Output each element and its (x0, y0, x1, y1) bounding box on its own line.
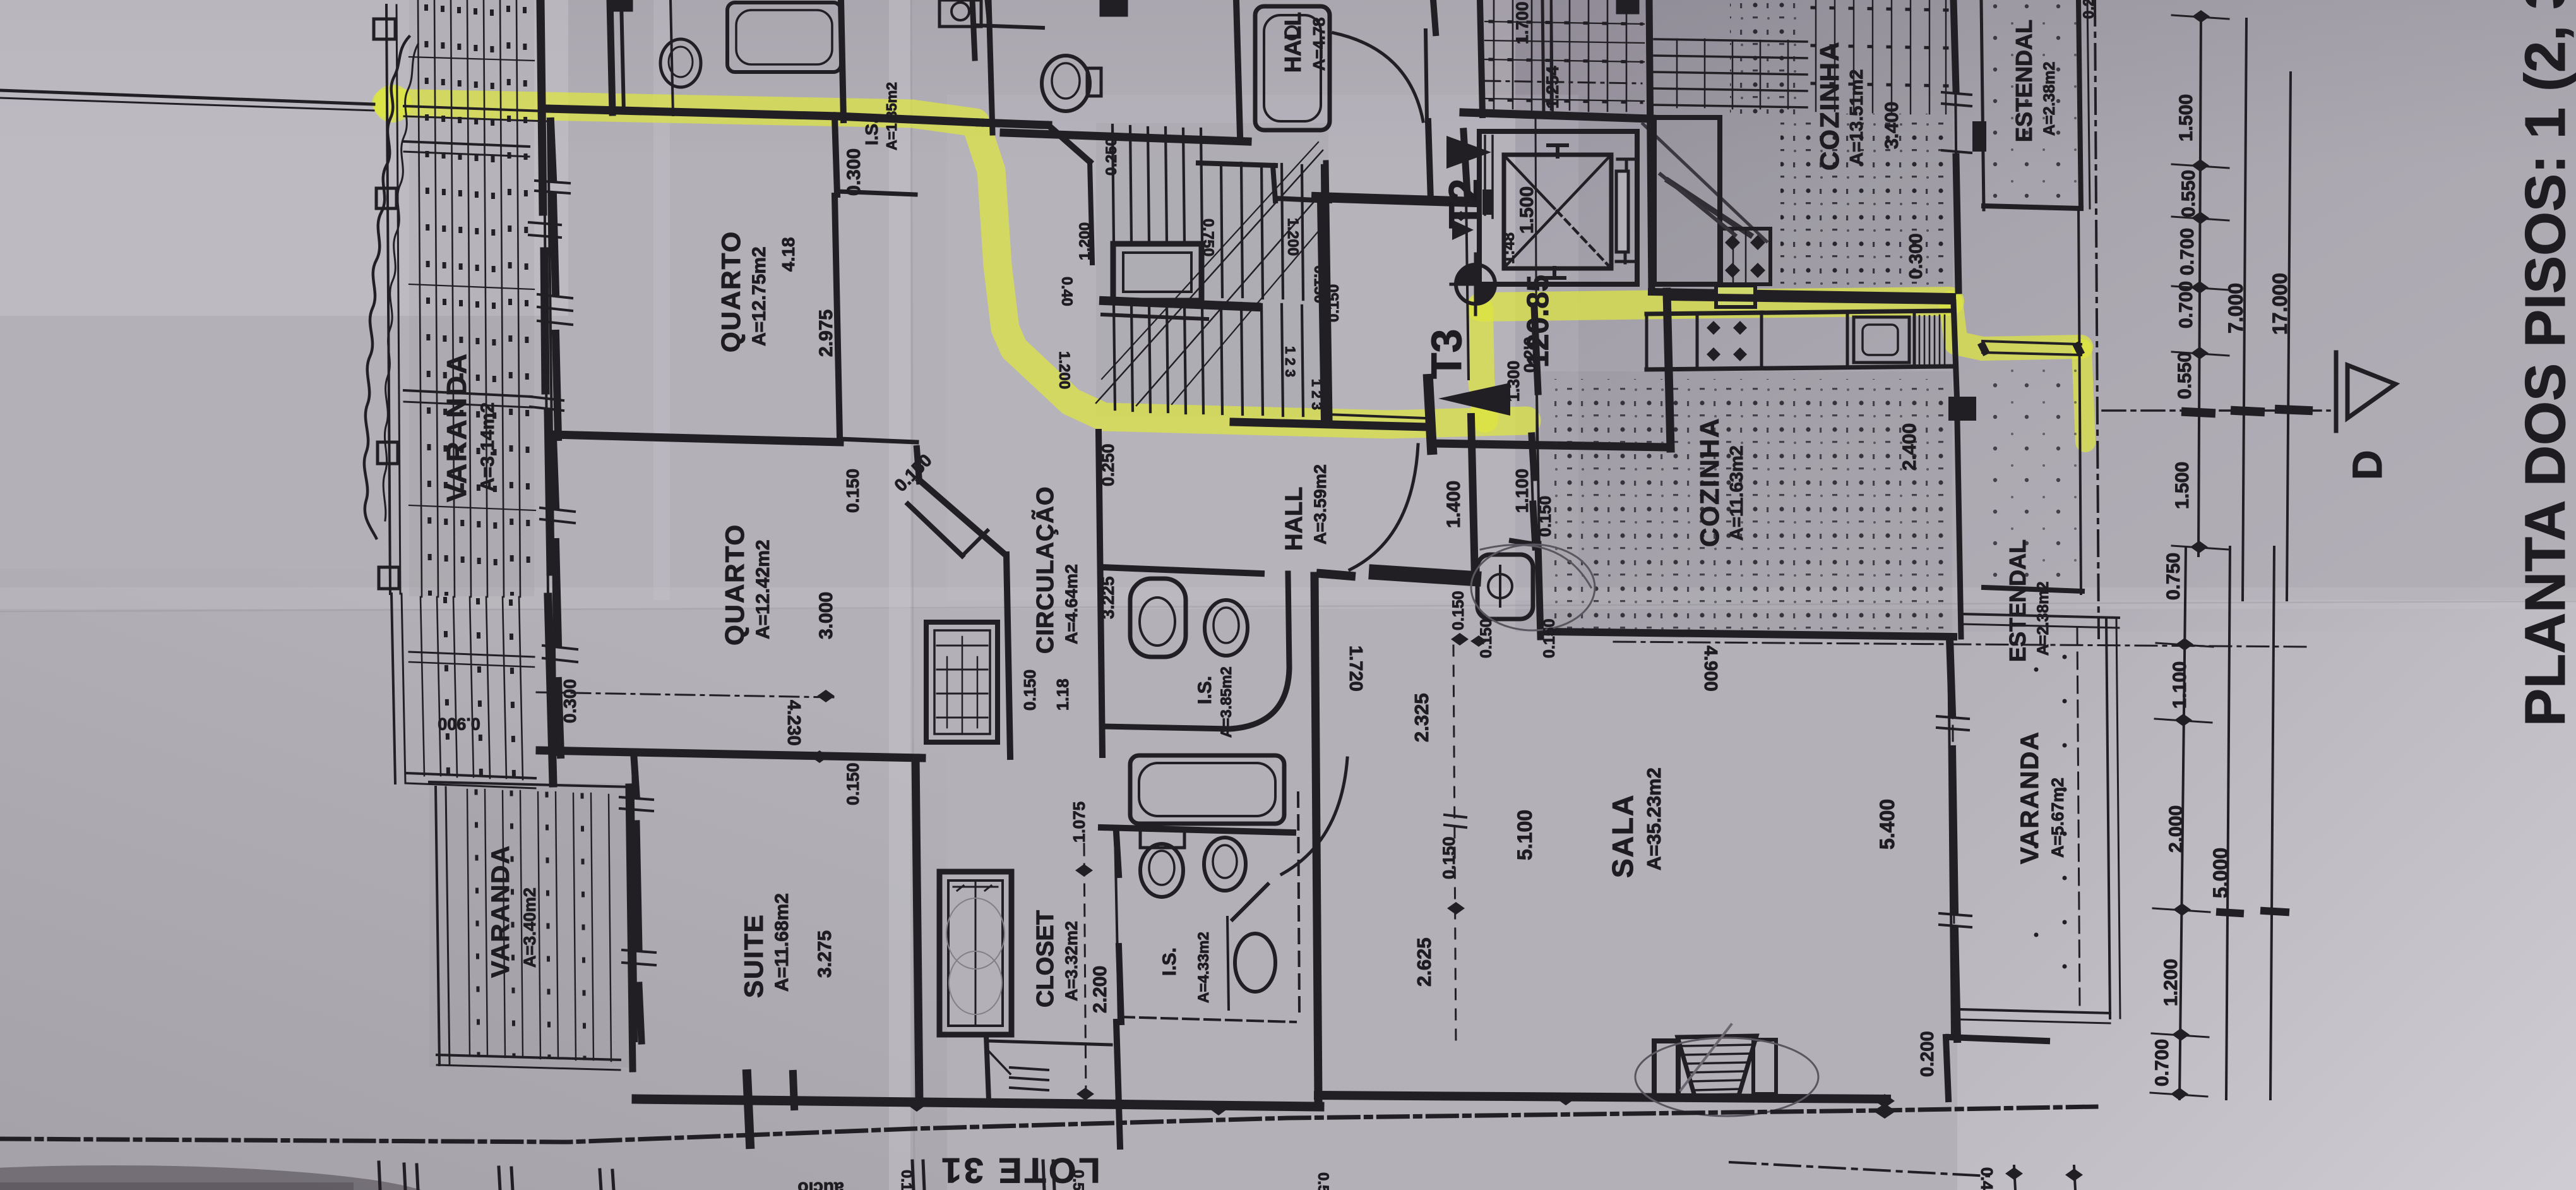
svg-text:A=4.78: A=4.78 (1309, 17, 1328, 71)
svg-text:A=3.32m2: A=3.32m2 (1062, 921, 1081, 1001)
svg-text:2.625: 2.625 (1413, 937, 1435, 987)
svg-text:I.S.: I.S. (1159, 947, 1180, 976)
svg-text:0.2'0: 0.2'0 (1520, 337, 1539, 373)
svg-text:0.150: 0.150 (1477, 618, 1495, 658)
svg-text:0.50: 0.50 (1070, 1170, 1087, 1190)
svg-text:A=5.67m2: A=5.67m2 (2048, 778, 2067, 858)
svg-text:aucio: aucio (797, 1179, 844, 1190)
svg-text:0.300: 0.300 (1906, 233, 1926, 279)
svg-text:1.200: 1.200 (1284, 218, 1301, 256)
svg-text:1.200: 1.200 (1056, 351, 1073, 389)
svg-text:A=3.40m2: A=3.40m2 (520, 887, 539, 968)
svg-text:VARANDA: VARANDA (487, 844, 515, 978)
svg-text:A=13.51m2: A=13.51m2 (1847, 69, 1867, 165)
svg-text:I.S.: I.S. (1195, 676, 1215, 704)
svg-text:A=12.42m2: A=12.42m2 (753, 539, 773, 639)
svg-text:4.230: 4.230 (784, 700, 804, 746)
svg-text:A=2.38m2: A=2.38m2 (2034, 582, 2052, 656)
svg-text:0.550: 0.550 (2174, 352, 2195, 399)
svg-text:D: D (2344, 450, 2390, 480)
svg-text:2.325: 2.325 (1410, 693, 1433, 742)
svg-text:5.400: 5.400 (1876, 799, 1899, 850)
svg-text:1.500: 1.500 (2172, 462, 2193, 509)
svg-text:ESTENDAL: ESTENDAL (2011, 20, 2037, 142)
svg-text:3.275: 3.275 (814, 930, 835, 978)
svg-text:4.900: 4.900 (1700, 646, 1720, 692)
svg-text:0.750: 0.750 (2163, 553, 2184, 600)
svg-text:CLOSET: CLOSET (1032, 910, 1059, 1007)
svg-text:A=2.38m2: A=2.38m2 (2041, 62, 2058, 136)
svg-text:2.000: 2.000 (2166, 805, 2186, 853)
svg-text:3.400: 3.400 (1881, 102, 1902, 149)
svg-text:3.000: 3.000 (816, 592, 837, 639)
svg-text:0.150: 0.150 (1541, 618, 1558, 658)
svg-text:I.S.: I.S. (862, 119, 881, 145)
svg-text:1 2 3: 1 2 3 (1282, 346, 1298, 377)
svg-text:0.150: 0.150 (1020, 670, 1039, 711)
svg-text:0.300: 0.300 (560, 679, 580, 723)
svg-text:0.700: 0.700 (2176, 281, 2197, 328)
svg-text:0.150: 0.150 (1450, 591, 1467, 630)
svg-text:A=1.85m2: A=1.85m2 (883, 82, 900, 150)
svg-text:0.150: 0.150 (843, 469, 862, 513)
svg-text:ESTENDAL: ESTENDAL (2005, 539, 2030, 662)
svg-text:1.254: 1.254 (1543, 66, 1562, 109)
svg-text:1.18: 1.18 (1053, 678, 1072, 711)
svg-text:COZINHA: COZINHA (1815, 41, 1844, 171)
svg-text:SALA: SALA (1606, 794, 1639, 878)
svg-text:A=3.59m2: A=3.59m2 (1311, 464, 1330, 544)
svg-text:A=11.63m2: A=11.63m2 (1727, 445, 1747, 541)
svg-text:0.300: 0.300 (844, 148, 864, 196)
svg-text:CIRCULAÇÃO: CIRCULAÇÃO (1031, 486, 1059, 654)
svg-text:SUITE: SUITE (739, 913, 768, 998)
svg-text:1.100: 1.100 (1512, 469, 1532, 513)
svg-text:T3: T3 (1422, 329, 1470, 379)
svg-text:A=35.23m2: A=35.23m2 (1643, 767, 1665, 870)
svg-text:1.200: 1.200 (2161, 959, 2181, 1006)
svg-text:1.700: 1.700 (1513, 1, 1532, 44)
svg-text:0.250: 0.250 (1103, 138, 1120, 176)
svg-text:QUARTO: QUARTO (720, 524, 749, 646)
svg-text:0.250: 0.250 (1099, 443, 1118, 486)
svg-text:0.200: 0.200 (1917, 1031, 1938, 1077)
svg-text:HALL: HALL (1280, 12, 1306, 73)
svg-text:0.750: 0.750 (1200, 219, 1217, 256)
svg-text:QUARTO: QUARTO (716, 231, 746, 352)
svg-text:4.18: 4.18 (778, 237, 798, 272)
svg-text:0.700: 0.700 (2177, 228, 2198, 275)
svg-text:PLANTA DOS PISOS: 1 (2, 3: PLANTA DOS PISOS: 1 (2, 3 (2514, 0, 2576, 726)
svg-text:A=4.33m2: A=4.33m2 (1195, 932, 1212, 1003)
svg-text:0.150: 0.150 (844, 762, 862, 805)
svg-text:A=12.75m2: A=12.75m2 (749, 246, 770, 346)
svg-text:0.400: 0.400 (1977, 1167, 1996, 1190)
svg-text:1.500: 1.500 (1517, 186, 1537, 234)
svg-text:0.40: 0.40 (1058, 277, 1075, 306)
svg-text:5.100: 5.100 (1513, 810, 1536, 860)
svg-text:0.50: 0.50 (1315, 1172, 1332, 1190)
svg-text:5.000: 5.000 (2209, 848, 2232, 898)
svg-text:0.700: 0.700 (2152, 1039, 2173, 1086)
svg-text:VARANDA: VARANDA (441, 352, 472, 502)
svg-text:1.200: 1.200 (1076, 222, 1094, 260)
svg-text:VARANDA: VARANDA (2016, 731, 2044, 864)
svg-text:0.150: 0.150 (898, 1170, 915, 1190)
svg-text:17.000: 17.000 (2269, 273, 2291, 335)
svg-text:A=3.14m2: A=3.14m2 (477, 402, 498, 491)
svg-text:HALL: HALL (1281, 487, 1308, 551)
svg-text:0.550: 0.550 (2178, 170, 2199, 217)
svg-text:1.100: 1.100 (2169, 661, 2190, 709)
svg-text:2.200: 2.200 (1090, 966, 1111, 1013)
svg-text:2.975: 2.975 (816, 310, 837, 357)
svg-text:2.400: 2.400 (1899, 423, 1920, 471)
svg-text:1.300: 1.300 (1504, 361, 1523, 402)
svg-text:1.400: 1.400 (1443, 481, 1464, 528)
svg-text:1.075: 1.075 (1070, 802, 1088, 843)
svg-text:0.900: 0.900 (438, 714, 480, 733)
svg-text:A=4.64m2: A=4.64m2 (1062, 564, 1081, 644)
svg-text:COZINHA: COZINHA (1695, 418, 1724, 547)
svg-text:1.720: 1.720 (1345, 646, 1366, 692)
svg-text:7.000: 7.000 (2224, 283, 2247, 334)
svg-text:A=11.68m2: A=11.68m2 (772, 893, 792, 992)
svg-text:1.500: 1.500 (2176, 94, 2197, 141)
svg-text:3.225: 3.225 (1099, 576, 1118, 619)
